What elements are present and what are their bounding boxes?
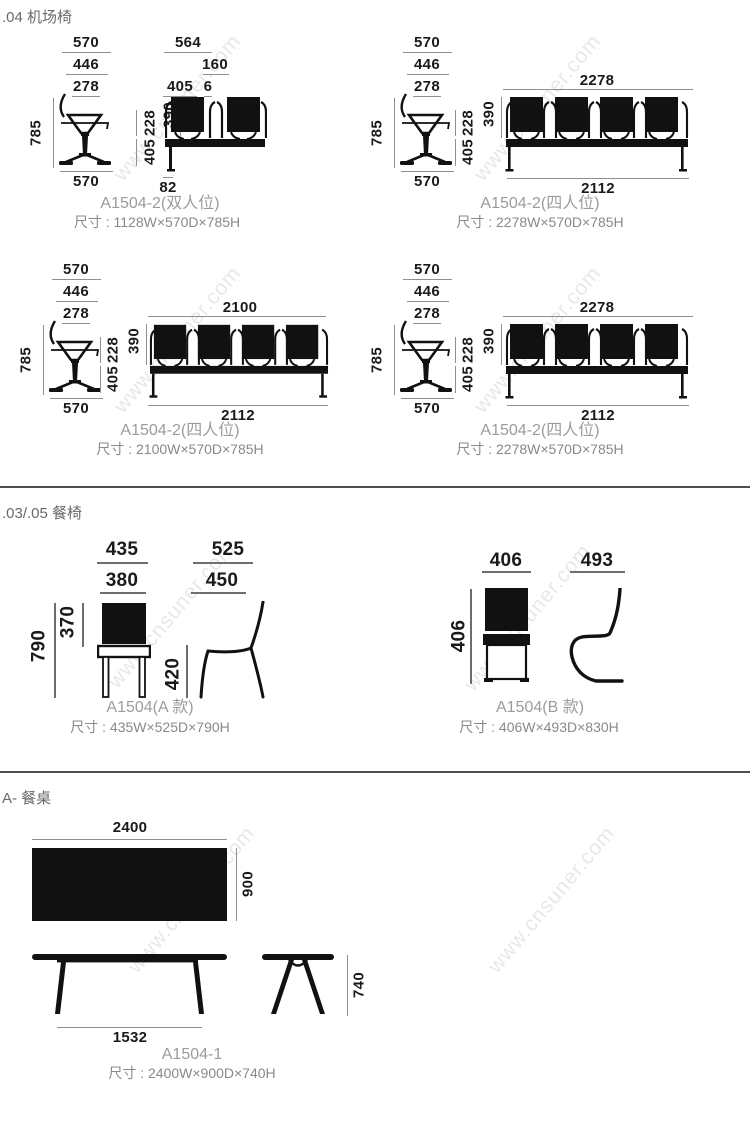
dim-line [394,325,395,395]
dim-p2-405: 405 [461,139,476,165]
airport-chair-side-drawing [397,92,459,172]
size-label-p4: 尺寸 : 2278W×570D×785H [456,442,623,456]
dim-line [32,839,227,840]
dining-chair-b-side-drawing [569,588,628,687]
dim-p1-side-785: 785 [29,120,44,146]
dim-line [193,562,253,564]
dim-p2-228: 228 [461,110,476,136]
dim-p2-390: 390 [482,101,497,127]
dim-line [60,171,113,172]
dim-line [163,177,173,178]
dim-line [56,301,98,302]
dim-line [470,589,472,684]
airport-chair-side-drawing [397,319,459,399]
dim-b-406w: 406 [490,551,523,570]
dim-p4-side-785: 785 [370,347,385,373]
dim-line [100,366,101,393]
dim-line [570,571,625,573]
dining-chair-a-front-drawing [97,601,151,699]
dim-p1-side-446: 446 [73,57,99,72]
dim-p1-405: 405 [167,79,193,94]
dim-a-420: 420 [164,658,183,691]
dim-table-1532: 1532 [113,1030,148,1045]
model-label-p4: A1504-2(四人位) [480,423,599,439]
dim-line [52,279,101,280]
dim-p3-side-570: 570 [63,262,89,277]
table-side-view-drawing [262,954,334,1016]
size-label-p2: 尺寸 : 2278W×570D×785H [456,215,623,229]
dim-a-790: 790 [30,630,49,663]
dim-p1-82: 82 [159,180,176,195]
size-label-p1: 尺寸 : 1128W×570D×785H [74,215,240,229]
dim-p3-405: 405 [106,366,121,392]
dim-table-2400: 2400 [113,820,148,835]
table-front-view-drawing [32,954,227,1016]
dim-line [503,316,693,317]
dim-table-740: 740 [352,972,367,998]
dim-line [148,316,326,317]
dim-p3-228: 228 [106,337,121,363]
dim-line [501,97,502,138]
dining-chair-b-front-drawing [482,588,531,684]
size-label-p3: 尺寸 : 2100W×570D×785H [96,442,263,456]
dim-line [164,52,212,53]
dim-p4-228: 228 [461,337,476,363]
dim-line [146,324,147,365]
dim-a-370: 370 [59,606,78,639]
model-label-dining-a: A1504(A 款) [106,700,193,716]
dim-line [407,74,449,75]
dim-p2-side-bottom-570: 570 [414,174,440,189]
section-divider [0,771,750,773]
size-label-dining-a: 尺寸 : 435W×525D×790H [70,720,230,734]
dim-b-406h: 406 [450,620,469,653]
dim-line [148,405,328,406]
dining-chair-a-side-drawing [199,601,269,699]
dim-line [43,325,44,395]
dim-p3-side-785: 785 [19,347,34,373]
dim-line [236,848,237,921]
dim-line [407,301,449,302]
dim-p3-2100: 2100 [223,300,258,315]
dim-line [455,139,456,166]
spec-sheet: www.cnsuner.com www.cnsuner.com www.cnsu… [0,0,750,1128]
dim-line [191,592,246,594]
table-top-view-drawing [32,848,227,921]
dim-line [97,562,148,564]
dim-table-900: 900 [241,871,256,897]
dim-line [57,1027,202,1028]
model-label-table: A1504-1 [162,1047,223,1063]
airport-bench-4seat-drawing [505,323,689,401]
dim-p1-405v: 405 [143,139,158,165]
dim-line [50,398,103,399]
dim-line [455,337,456,363]
dim-line [186,645,188,698]
dim-p1-side-570: 570 [73,35,99,50]
dim-p2-2112: 2112 [581,181,615,196]
airport-bench-4seat-drawing [505,96,689,174]
dim-line [403,279,452,280]
airport-chair-side-drawing [56,92,118,172]
dim-line [455,366,456,393]
dim-p4-side-446: 446 [414,284,440,299]
dim-line [507,178,689,179]
size-label-table: 尺寸 : 2400W×900D×740H [108,1066,275,1080]
dim-line [401,171,454,172]
dim-line [66,74,108,75]
dim-line [501,324,502,365]
dim-p3-side-446: 446 [63,284,89,299]
dim-line [136,139,137,166]
dim-b-493: 493 [581,551,614,570]
dim-p4-405: 405 [461,366,476,392]
dim-line [507,405,689,406]
airport-chair-side-drawing [46,319,108,399]
section-title-table: A- 餐桌 [2,787,51,808]
dim-p1-564: 564 [175,35,201,50]
dim-p1-228: 228 [143,110,158,136]
dim-line [62,52,111,53]
size-label-dining-b: 尺寸 : 406W×493D×830H [459,720,619,734]
dim-line [53,98,54,168]
dim-p4-2112: 2112 [581,408,615,423]
dim-line [401,398,454,399]
dim-line [394,98,395,168]
dim-line [100,592,146,594]
dim-p2-side-570: 570 [414,35,440,50]
dim-p1-side-bottom-570: 570 [73,174,99,189]
dim-p4-2278: 2278 [580,300,615,315]
dim-p4-side-bottom-570: 570 [414,401,440,416]
dim-line [54,603,56,698]
dim-a-380: 380 [106,571,139,590]
dim-p2-2278: 2278 [580,73,615,88]
model-label-p3: A1504-2(四人位) [120,423,239,439]
airport-bench-4seat-drawing [149,323,329,401]
dim-line [82,603,84,647]
dim-a-525: 525 [212,540,245,559]
dim-p2-side-446: 446 [414,57,440,72]
dim-line [100,337,101,363]
dim-p3-side-bottom-570: 570 [63,401,89,416]
airport-bench-2seat-drawing [165,96,267,174]
dim-p4-side-570: 570 [414,262,440,277]
dim-p1-160: 160 [202,57,228,72]
section-divider [0,486,750,488]
dim-a-450: 450 [206,571,239,590]
dim-p1-6: 6 [204,79,213,94]
dim-line [203,74,229,75]
model-label-dining-b: A1504(B 款) [496,700,584,716]
dim-p2-side-785: 785 [370,120,385,146]
model-label-p2: A1504-2(四人位) [480,196,599,212]
dim-p3-390: 390 [127,328,142,354]
dim-p3-2112: 2112 [221,408,255,423]
dim-line [403,52,452,53]
watermark-text: www.cnsuner.com [484,822,621,979]
model-label-p1: A1504-2(双人位) [100,196,219,212]
section-title-dining: .03/.05 餐椅 [2,502,82,523]
dim-p4-390: 390 [482,328,497,354]
dim-line [347,955,348,1016]
section-title-airport: .04 机场椅 [2,6,72,27]
dim-line [136,110,137,136]
dim-a-435: 435 [106,540,139,559]
dim-line [455,110,456,136]
dim-line [503,89,693,90]
dim-line [482,571,531,573]
